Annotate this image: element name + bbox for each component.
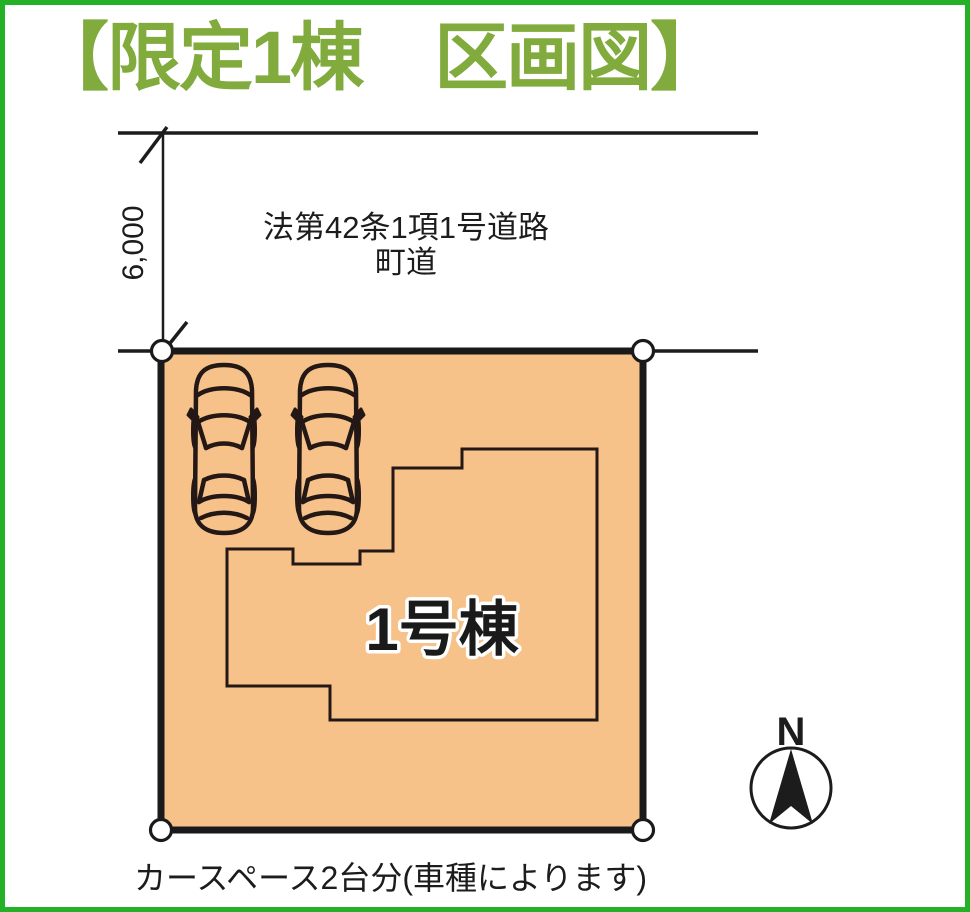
plot-plan-diagram: 6,000 法第42条1項1号道路 町道 1号棟 カースペース2台分(車種により… bbox=[5, 5, 965, 907]
road-width-dimension: 6,000 bbox=[117, 127, 187, 352]
road-type-label: 法第42条1項1号道路 bbox=[263, 210, 549, 245]
boundary-marker bbox=[151, 820, 172, 841]
car-space-caption: カースペース2台分(車種によります) bbox=[134, 860, 647, 896]
compass: N bbox=[751, 710, 831, 828]
road-name-label: 町道 bbox=[375, 245, 437, 280]
dimension-value-label: 6,000 bbox=[117, 205, 150, 280]
page-frame: 【限定1棟 区画図】 bbox=[0, 0, 970, 912]
boundary-marker bbox=[633, 341, 654, 362]
building-number-label: 1号棟 bbox=[365, 596, 519, 663]
boundary-marker bbox=[633, 820, 654, 841]
boundary-marker bbox=[152, 341, 173, 362]
